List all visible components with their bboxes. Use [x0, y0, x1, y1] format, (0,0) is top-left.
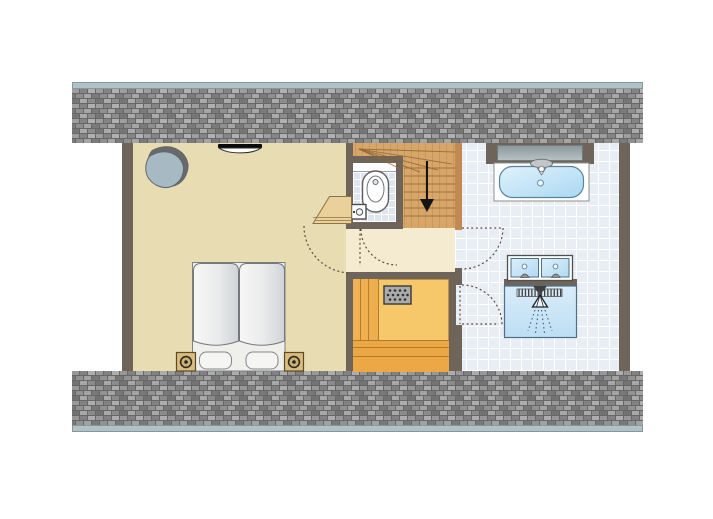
wall-toilet-bottom [346, 222, 403, 229]
wall-stair-stringer [455, 143, 462, 230]
wall-landing-sauna [346, 272, 458, 279]
wall-bathroom-left-mid [455, 268, 462, 285]
wall-bedroom-lower [346, 272, 353, 371]
roof-edge-strip [72, 425, 643, 432]
toilet-cistern-shelf [353, 163, 396, 172]
roof-band-bottom [72, 371, 643, 432]
room-toilet [353, 163, 396, 222]
room-landing [353, 228, 455, 272]
wall-shower-partition [504, 279, 577, 286]
bathroom-window [497, 145, 583, 161]
roof-edge-strip [72, 82, 643, 89]
room-bathroom [455, 143, 619, 371]
roof-texture [72, 371, 643, 425]
roof-texture [72, 89, 643, 143]
room-sauna [353, 279, 449, 371]
floor-plan [0, 0, 713, 519]
roof-band-top [72, 82, 643, 143]
wall-toilet-top [346, 156, 403, 163]
wall-outer-left [122, 143, 133, 371]
room-bedroom [133, 143, 346, 371]
wall-toilet-right [396, 156, 403, 229]
bedroom-door-threshold [346, 224, 353, 272]
bench-edge [353, 347, 449, 348]
bench-edge [353, 356, 449, 357]
toilet-floor-tile [353, 172, 396, 222]
wall-bathroom-left-low [455, 325, 462, 371]
wall-outer-right [619, 143, 630, 371]
